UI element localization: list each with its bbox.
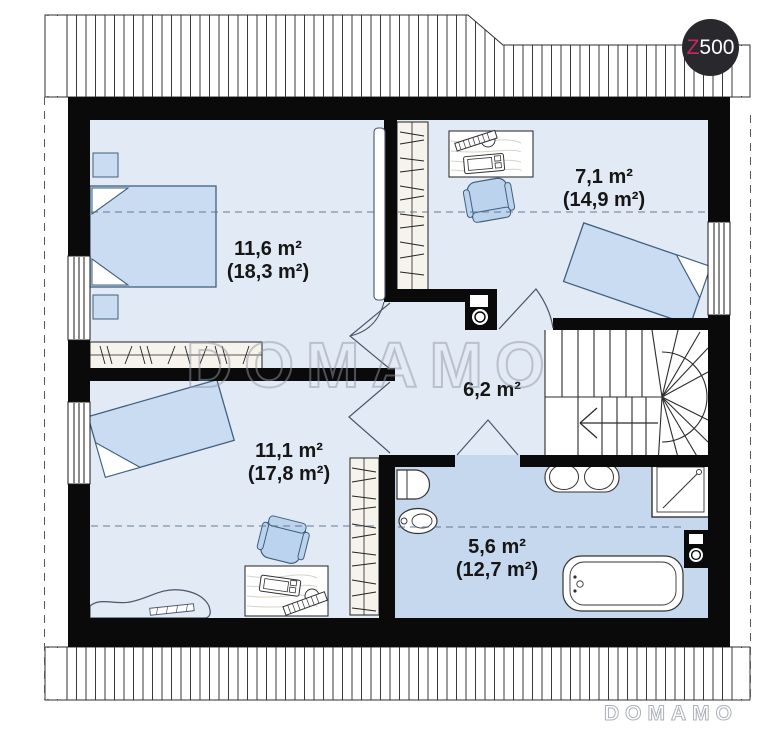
shower xyxy=(652,462,709,517)
roof-hatch-top xyxy=(45,15,750,97)
wardrobe-vertical xyxy=(397,122,428,290)
room-total-area: (17,8 m²) xyxy=(201,463,377,486)
room-total-area: (12,7 m²) xyxy=(409,559,585,582)
z500-logo-suffix: 500 xyxy=(699,36,734,60)
room-total-area: (18,3 m²) xyxy=(180,261,356,284)
room-area: 11,1 m² xyxy=(201,440,377,463)
z500-logo-prefix: Z xyxy=(687,36,700,60)
window xyxy=(708,222,730,315)
staircase xyxy=(545,330,708,465)
bidet xyxy=(399,509,437,534)
wardrobe-horizontal xyxy=(90,342,262,369)
window xyxy=(68,256,90,340)
z500-logo: Z500 xyxy=(682,19,739,76)
room-total-area: (14,9 m²) xyxy=(516,189,692,212)
room-label-bathroom: 5,6 m² (12,7 m²) xyxy=(409,536,585,582)
nightstand xyxy=(93,295,118,319)
floor-plan-drawing xyxy=(0,0,758,738)
room-label-bedroom-bottom-left: 11,1 m² (17,8 m²) xyxy=(201,440,377,486)
room-area: 5,6 m² xyxy=(409,536,585,559)
toilet xyxy=(397,470,430,499)
room-label-hall: 6,2 m² xyxy=(422,379,562,402)
desk-laptop xyxy=(463,153,504,173)
room-label-bedroom-top-right: 7,1 m² (14,9 m²) xyxy=(516,166,692,212)
window xyxy=(68,402,90,484)
room-label-bedroom-top-left: 11,6 m² (18,3 m²) xyxy=(180,238,356,284)
room-area: 11,6 m² xyxy=(180,238,356,261)
room-area: 6,2 m² xyxy=(422,379,562,402)
roof-hatch-bottom xyxy=(45,647,750,700)
nightstand xyxy=(93,153,118,177)
desk xyxy=(245,566,328,616)
floor-plan-canvas: 11,6 m² (18,3 m²) 7,1 m² (14,9 m²) 6,2 m… xyxy=(0,0,758,738)
room-area: 7,1 m² xyxy=(516,166,692,189)
